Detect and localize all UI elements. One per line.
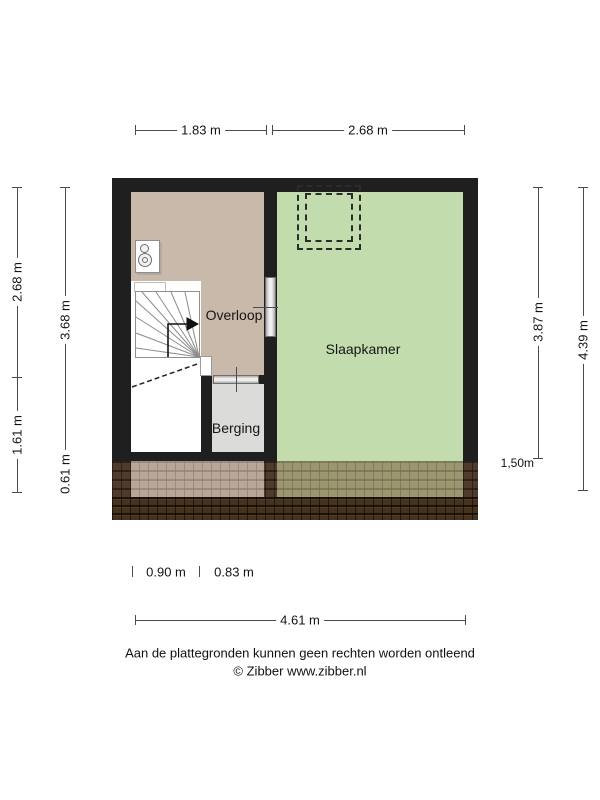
dim-top-2-label: 2.68 m — [344, 123, 392, 138]
wall-bottom-left — [112, 452, 277, 461]
disclaimer-text: Aan de plattegronden kunnen geen rechten… — [125, 646, 475, 661]
roof-tiles-eave — [112, 497, 478, 520]
dim-bottom-083-label: 0.83 m — [210, 565, 258, 580]
dim-left-268-label: 2.68 m — [10, 258, 25, 306]
dim-left-368-label: 3.68 m — [58, 296, 73, 344]
dim-left-061-label: 0.61 m — [58, 450, 73, 498]
copyright-text: © Zibber www.zibber.nl — [233, 664, 366, 679]
dim-left-161-label: 1.61 m — [10, 411, 25, 459]
room-label-berging: Berging — [212, 420, 260, 436]
dim-top-1-label: 1.83 m — [177, 123, 225, 138]
roof-tiles-translucent — [112, 461, 478, 497]
door-berging-tick — [236, 367, 237, 392]
wall-stair-berging — [201, 375, 212, 452]
stairs-icon — [135, 291, 200, 358]
dim-bottom-090-label: 0.90 m — [142, 565, 190, 580]
skylight-inner — [305, 193, 353, 242]
dim-right-150-label: 1,50m — [492, 456, 534, 470]
room-label-overloop: Overloop — [206, 307, 263, 323]
floor-plan-page: 1.83 m 2.68 m 2.68 m 1.61 m 3.68 m 0.61 … — [0, 0, 600, 800]
wall-berging-door-jamb — [258, 375, 277, 384]
dim-bottom-461-label: 4.61 m — [276, 613, 324, 628]
toilet-icon — [135, 240, 160, 273]
dim-right-439-label: 4.39 m — [576, 316, 591, 364]
stair-notch — [200, 356, 212, 376]
room-label-slaapkamer: Slaapkamer — [326, 341, 401, 357]
room-berging-floor — [212, 384, 264, 452]
dim-right-387-label: 3.87 m — [531, 298, 546, 346]
